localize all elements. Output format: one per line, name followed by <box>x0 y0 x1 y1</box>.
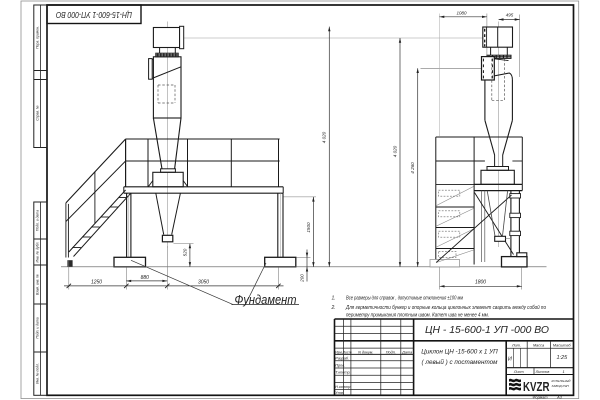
svg-text:Справ. №: Справ. № <box>35 105 39 121</box>
svg-text:КОТЕЛЬНЫЙ: КОТЕЛЬНЫЙ <box>552 379 572 383</box>
svg-text:ЗАВОД РЭП: ЗАВОД РЭП <box>552 384 570 388</box>
svg-text:Взам. инв. №: Взам. инв. № <box>35 274 39 295</box>
svg-text:Масштаб: Масштаб <box>553 344 572 348</box>
svg-text:Подп. и дата: Подп. и дата <box>35 210 39 231</box>
svg-text:495: 495 <box>506 13 514 18</box>
svg-text:1500: 1500 <box>306 222 311 233</box>
svg-text:Дата: Дата <box>401 350 412 354</box>
svg-text:Лит.: Лит. <box>511 344 521 348</box>
svg-text:Разраб.: Разраб. <box>335 357 349 361</box>
svg-text:Пров.: Пров. <box>335 363 345 367</box>
svg-text:4 260: 4 260 <box>410 162 415 174</box>
svg-text:4 020: 4 020 <box>392 145 397 157</box>
svg-text:ЦН - 15-600-1 УП -000 ВО: ЦН - 15-600-1 УП -000 ВО <box>425 325 549 336</box>
svg-text:Масса: Масса <box>533 344 544 348</box>
svg-text:периметру примыкания плотным ш: периметру примыкания плотным швом. Катет… <box>346 312 489 318</box>
svg-text:Подп.: Подп. <box>386 350 396 354</box>
svg-text:1: 1 <box>562 370 564 374</box>
svg-text:4 020: 4 020 <box>322 131 327 143</box>
svg-text:Инв. № подл.: Инв. № подл. <box>35 363 39 384</box>
svg-text:880: 880 <box>141 275 150 281</box>
svg-text:1.: 1. <box>332 296 336 302</box>
svg-text:2.: 2. <box>331 305 336 311</box>
svg-text:Утв.: Утв. <box>335 391 344 395</box>
svg-text:520: 520 <box>182 248 187 256</box>
svg-text:1080: 1080 <box>456 11 467 16</box>
svg-text:1800: 1800 <box>475 280 486 286</box>
svg-text:Лист: Лист <box>341 350 351 354</box>
svg-text:Т.контр.: Т.контр. <box>335 371 350 375</box>
svg-text:Формат: Формат <box>532 396 547 400</box>
svg-text:1:25: 1:25 <box>556 355 568 361</box>
svg-text:ЦН-15-600-1 УП-000 ВО: ЦН-15-600-1 УП-000 ВО <box>56 10 132 19</box>
svg-text:KVZR: KVZR <box>523 379 550 394</box>
svg-text:Лист: Лист <box>513 370 524 374</box>
svg-text:( левый ) с постаментом: ( левый ) с постаментом <box>422 358 499 366</box>
svg-text:Фундамент: Фундамент <box>235 293 297 307</box>
svg-text:И: И <box>508 356 512 362</box>
svg-text:Циклон ЦН -15-600 х 1 УП: Циклон ЦН -15-600 х 1 УП <box>421 349 498 356</box>
svg-text:Инв. № дубл.: Инв. № дубл. <box>35 242 39 263</box>
svg-text:Подп. и дата: Подп. и дата <box>35 317 39 338</box>
svg-text:1250: 1250 <box>91 279 102 285</box>
svg-text:Перв. примен.: Перв. примен. <box>35 26 39 49</box>
svg-text:N докум.: N докум. <box>358 350 373 354</box>
svg-text:А3: А3 <box>556 396 563 400</box>
svg-text:Н.контр.: Н.контр. <box>335 385 351 389</box>
svg-text:Листов: Листов <box>535 370 550 374</box>
svg-text:Для герметичности бункер и опо: Для герметичности бункер и опорные кольц… <box>345 304 546 311</box>
svg-text:Все размеры для справок , допу: Все размеры для справок , допустимые отк… <box>346 296 463 302</box>
svg-text:200: 200 <box>299 274 304 283</box>
svg-text:3050: 3050 <box>198 279 209 285</box>
